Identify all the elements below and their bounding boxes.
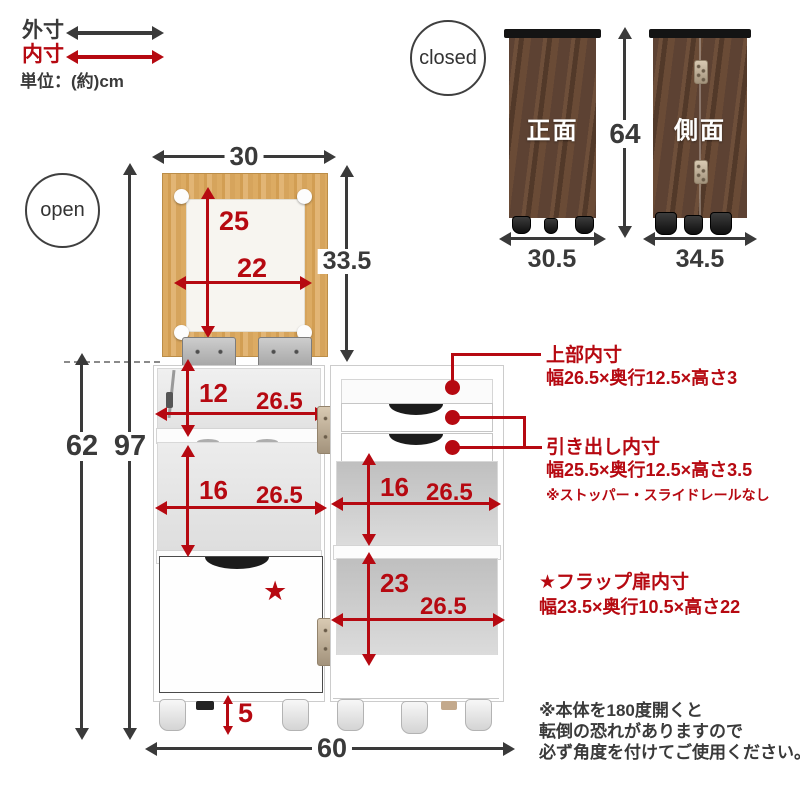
caster-stopper bbox=[441, 701, 457, 710]
callout-line bbox=[452, 446, 542, 449]
body-height-value: 62 bbox=[61, 432, 103, 461]
flap-width-value: 30 bbox=[225, 143, 264, 169]
right-bottom-width-arrow bbox=[341, 618, 495, 621]
caster-height-arrow bbox=[226, 703, 229, 727]
drawer1-callout-dot bbox=[445, 410, 460, 425]
front-label: 正面 bbox=[509, 111, 596, 146]
right-bottom-height-arrow bbox=[367, 562, 370, 656]
front-top-board bbox=[504, 29, 601, 38]
side-hinge bbox=[694, 60, 708, 84]
left-mid-height-arrow bbox=[186, 455, 189, 547]
callout-line bbox=[523, 416, 526, 449]
total-height-value: 97 bbox=[109, 432, 151, 461]
right-caster bbox=[401, 701, 428, 734]
front-width-value: 30.5 bbox=[528, 247, 577, 272]
side-caster bbox=[655, 212, 677, 235]
total-width-value: 60 bbox=[312, 735, 352, 762]
callout-line bbox=[452, 416, 526, 419]
left-flap-door-front bbox=[159, 556, 323, 693]
flap-door-star: ★ bbox=[263, 578, 287, 605]
caster-height-value: 5 bbox=[238, 700, 253, 727]
side-caster bbox=[710, 212, 732, 235]
left-top-height-value: 12 bbox=[199, 380, 228, 406]
closed-badge: closed bbox=[410, 20, 486, 96]
drawer2-callout-dot bbox=[445, 440, 460, 455]
flap-inner-height-value: 25 bbox=[219, 208, 249, 235]
left-mid-height-value: 16 bbox=[199, 477, 228, 503]
drawer-inner-note: ※ストッパー・スライドレールなし bbox=[546, 485, 770, 505]
side-hinge bbox=[694, 160, 708, 184]
left-caster bbox=[159, 699, 186, 731]
right-bottom-width-value: 26.5 bbox=[420, 595, 467, 619]
callout-line bbox=[451, 353, 541, 356]
side-top-board bbox=[649, 29, 751, 38]
right-caster bbox=[337, 699, 364, 731]
legend-inner-label: 内寸 bbox=[22, 44, 64, 65]
flap-inner-width-value: 22 bbox=[237, 255, 267, 282]
top-inner-dims: 幅26.5×奥行12.5×高さ3 bbox=[546, 368, 737, 389]
body-height-arrow bbox=[80, 363, 83, 730]
flap-stay-bracket bbox=[166, 392, 173, 408]
legend-outer-label: 外寸 bbox=[22, 20, 64, 41]
side-caster bbox=[684, 215, 703, 235]
legend-unit-label: 単位：(約)cm bbox=[20, 73, 124, 90]
closed-height-value: 64 bbox=[604, 120, 645, 148]
flap-corner-pad bbox=[174, 189, 189, 204]
inner-dimension-arrow bbox=[76, 55, 154, 59]
right-base-panel bbox=[333, 655, 499, 699]
product-dimension-diagram: 外寸 内寸 単位：(約)cm closed 正面 30.5 64 側面 34.5… bbox=[0, 0, 800, 800]
outer-dimension-arrow bbox=[76, 31, 154, 35]
right-top-tray bbox=[341, 379, 493, 405]
front-cabinet-photo: 正面 bbox=[509, 38, 596, 218]
top-inner-title: 上部内寸 bbox=[546, 345, 622, 367]
right-bottom-height-value: 23 bbox=[380, 570, 409, 596]
flap-inner-dims: 幅23.5×奥行10.5×高さ22 bbox=[539, 597, 740, 618]
side-label: 側面 bbox=[653, 111, 747, 146]
caster-stopper bbox=[196, 701, 214, 710]
left-caster bbox=[282, 699, 309, 731]
warning-line-3: 必ず角度を付けてご使用ください。 bbox=[539, 742, 800, 764]
side-cabinet-photo: 側面 bbox=[653, 38, 747, 218]
warning-line-1: ※本体を180度開くと bbox=[539, 700, 703, 722]
right-caster bbox=[465, 699, 492, 731]
left-top-width-value: 26.5 bbox=[256, 390, 303, 414]
drawer-inner-dims: 幅25.5×奥行12.5×高さ3.5 bbox=[546, 460, 752, 481]
right-shelf-height-arrow bbox=[367, 463, 370, 536]
flap-inner-title: ★フラップ扉内寸 bbox=[539, 572, 689, 594]
flap-height-value: 33.5 bbox=[318, 249, 377, 274]
open-badge: open bbox=[25, 173, 100, 248]
left-top-height-arrow bbox=[186, 369, 189, 427]
front-caster bbox=[575, 216, 594, 234]
side-width-arrow bbox=[653, 237, 747, 240]
warning-line-2: 転倒の恐れがありますので bbox=[539, 721, 743, 743]
drawer-inner-title: 引き出し内寸 bbox=[546, 437, 660, 459]
left-mid-width-value: 26.5 bbox=[256, 484, 303, 508]
side-width-value: 34.5 bbox=[676, 247, 725, 272]
flap-inner-height-arrow bbox=[206, 197, 209, 328]
right-shelf-width-value: 26.5 bbox=[426, 481, 473, 505]
top-tray-callout-dot bbox=[445, 380, 460, 395]
right-bottom-compartment bbox=[336, 558, 498, 657]
flap-corner-pad bbox=[297, 189, 312, 204]
right-shelf-height-value: 16 bbox=[380, 474, 409, 500]
front-width-arrow bbox=[509, 237, 596, 240]
front-caster bbox=[512, 216, 531, 234]
front-caster bbox=[544, 218, 558, 234]
